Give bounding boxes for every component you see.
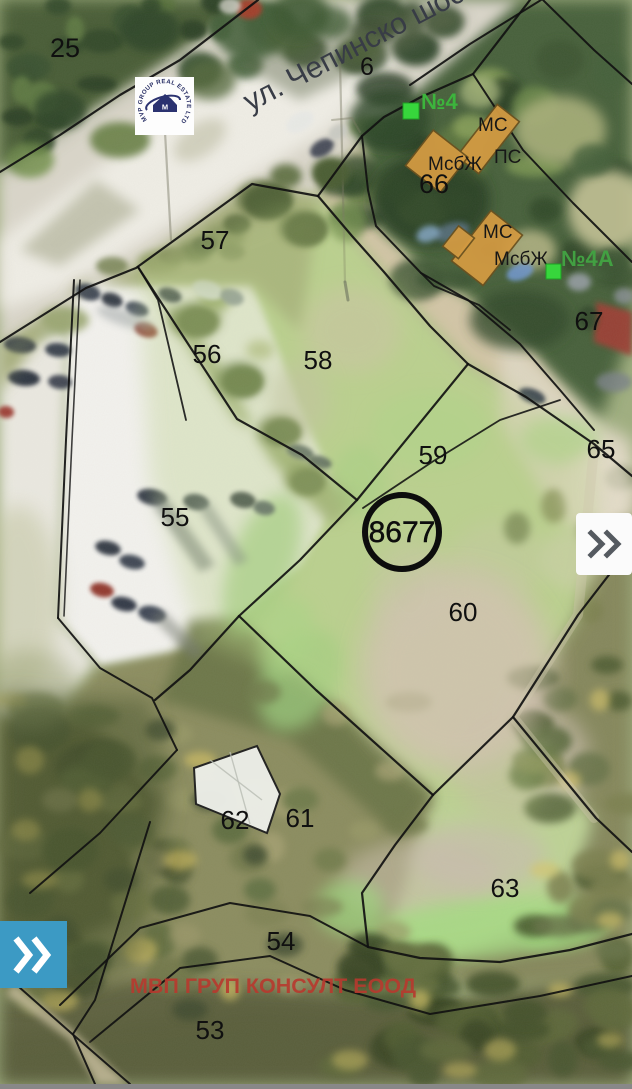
svg-text:25: 25 <box>50 33 80 63</box>
svg-text:56: 56 <box>193 339 222 369</box>
svg-text:57: 57 <box>201 225 230 255</box>
svg-text:53: 53 <box>196 1015 225 1045</box>
svg-text:62: 62 <box>221 805 250 835</box>
svg-text:№4: №4 <box>421 89 459 114</box>
svg-text:55: 55 <box>161 502 190 532</box>
svg-text:59: 59 <box>419 440 448 470</box>
svg-text:МсбЖ: МсбЖ <box>494 249 548 270</box>
svg-text:МВП ГРУП КОНСУЛТ ЕООД: МВП ГРУП КОНСУЛТ ЕООД <box>130 974 416 998</box>
svg-text:58: 58 <box>304 345 333 375</box>
svg-text:67: 67 <box>575 306 604 336</box>
svg-text:№4А: №4А <box>561 246 614 271</box>
svg-text:МС: МС <box>478 115 508 136</box>
svg-text:МсбЖ: МсбЖ <box>428 154 482 175</box>
svg-text:60: 60 <box>449 597 478 627</box>
svg-text:54: 54 <box>267 926 296 956</box>
svg-text:63: 63 <box>491 873 520 903</box>
svg-text:МС: МС <box>483 222 513 243</box>
svg-text:ПС: ПС <box>494 147 521 168</box>
svg-text:61: 61 <box>286 803 315 833</box>
svg-text:8677: 8677 <box>369 516 436 549</box>
svg-text:M: M <box>162 103 168 112</box>
svg-text:65: 65 <box>587 434 616 464</box>
